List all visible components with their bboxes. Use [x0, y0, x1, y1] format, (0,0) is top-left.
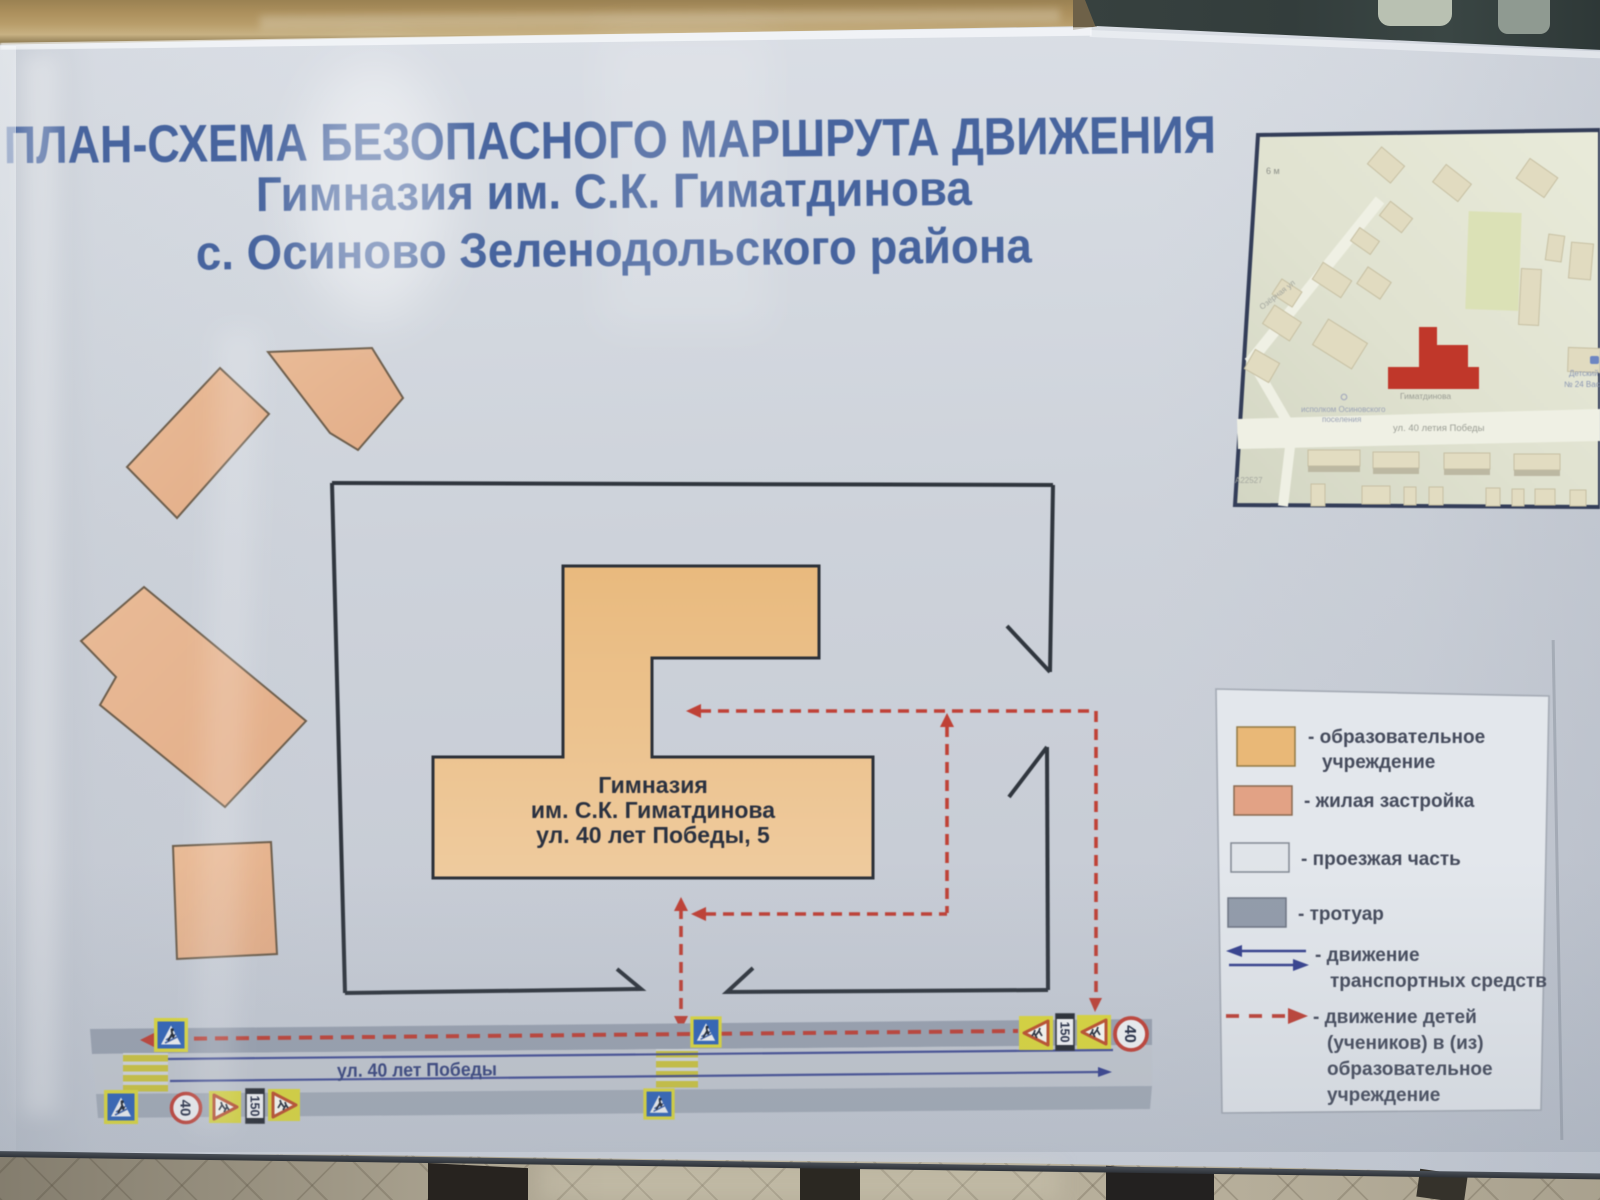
svg-text:Гиматдинова: Гиматдинова: [1400, 391, 1451, 401]
svg-text:Детский: Детский: [1569, 369, 1599, 378]
svg-text:ул. 40 лет Победы, 5: ул. 40 лет Победы, 5: [536, 822, 770, 848]
svg-text:исполком Осиновского: исполком Осиновского: [1301, 405, 1386, 414]
svg-text:ул. 40 летия Победы: ул. 40 летия Победы: [1393, 423, 1485, 434]
svg-text:им. С.К. Гиматдинова: им. С.К. Гиматдинова: [531, 797, 775, 823]
svg-text:поселения: поселения: [1322, 415, 1361, 424]
svg-text:- образовательное: - образовательное: [1308, 727, 1485, 748]
svg-text:- жилая застройка: - жилая застройка: [1304, 791, 1475, 812]
svg-text:6 м: 6 м: [1266, 166, 1280, 176]
svg-text:№ 24 Вас: № 24 Вас: [1564, 380, 1600, 389]
svg-text:Гимназия: Гимназия: [598, 772, 708, 798]
svg-text:A22527: A22527: [1235, 476, 1263, 485]
svg-text:учреждение: учреждение: [1322, 752, 1435, 773]
